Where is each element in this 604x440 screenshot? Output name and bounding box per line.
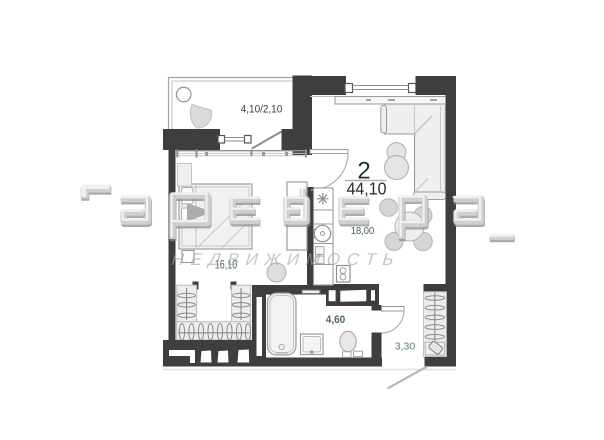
svg-text:18,00: 18,00 xyxy=(351,225,375,237)
svg-text:3,30: 3,30 xyxy=(395,341,416,353)
svg-text:4,60: 4,60 xyxy=(326,314,346,326)
svg-text:4,10/2,10: 4,10/2,10 xyxy=(241,104,283,116)
svg-text:44,10: 44,10 xyxy=(347,179,387,199)
svg-text:НЕДВИЖИМОСТЬ: НЕДВИЖИМОСТЬ xyxy=(171,250,402,269)
